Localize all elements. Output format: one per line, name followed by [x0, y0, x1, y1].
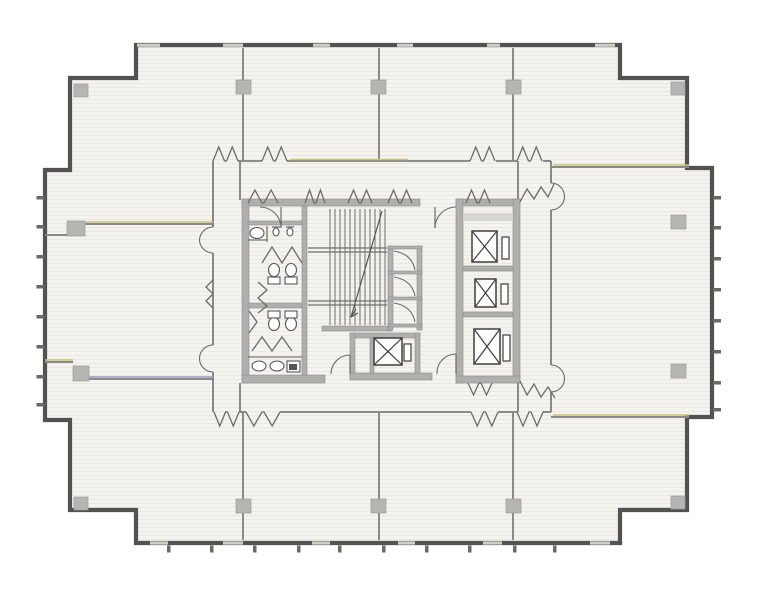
- wall-vent-segment: [397, 44, 413, 47]
- plumbing-fixture: [286, 264, 297, 277]
- window-mullion-tick: [513, 546, 517, 553]
- elevator-door: [502, 237, 509, 259]
- structural-column: [371, 499, 386, 513]
- core-wall: [350, 333, 355, 379]
- window-mullion-tick: [37, 403, 45, 407]
- core-wall: [463, 266, 513, 271]
- window-mullion-tick: [468, 546, 472, 553]
- structural-column: [236, 80, 251, 94]
- structural-column: [74, 84, 88, 97]
- plumbing-fixture: [269, 318, 280, 331]
- elevator-door: [501, 284, 508, 304]
- core-wall: [388, 246, 393, 330]
- window-mullion-tick: [297, 546, 301, 553]
- structural-column: [506, 80, 521, 94]
- elevator-door: [404, 344, 411, 361]
- plumbing-fixture: [269, 264, 280, 277]
- plumbing-fixture: [270, 361, 284, 371]
- structural-column: [236, 499, 251, 513]
- window-mullion-tick: [37, 375, 45, 379]
- core-wall: [302, 206, 307, 375]
- structural-column: [506, 499, 521, 513]
- structural-column: [73, 366, 89, 381]
- window-mullion-tick: [713, 381, 721, 385]
- window-mullion-tick: [713, 196, 721, 200]
- window-mullion-tick: [210, 546, 214, 553]
- structural-column: [671, 496, 685, 509]
- wall-vent-segment: [223, 44, 243, 47]
- structural-column: [67, 221, 85, 236]
- window-mullion-tick: [425, 546, 429, 553]
- wall-vent-segment: [313, 44, 330, 47]
- elevator-door: [503, 335, 510, 361]
- plumbing-fixture: [268, 277, 280, 284]
- window-mullion-tick: [713, 319, 721, 323]
- core-wall: [463, 312, 513, 317]
- core-wall: [456, 199, 463, 383]
- plumbing-fixture: [252, 361, 266, 371]
- core-wall: [248, 221, 302, 225]
- wall-vent-segment: [487, 44, 500, 47]
- plumbing-fixture: [250, 228, 264, 239]
- window-mullion-tick: [37, 255, 45, 259]
- core-wall: [242, 199, 249, 383]
- window-mullion-tick: [713, 257, 721, 261]
- core-wall: [388, 246, 422, 249]
- wall-vent-segment: [483, 541, 502, 544]
- structural-column: [671, 82, 685, 95]
- core-wall: [417, 246, 422, 330]
- core-wall: [513, 199, 520, 383]
- core-wall: [456, 376, 520, 383]
- plumbing-fixture: [289, 364, 297, 370]
- structural-column: [671, 215, 686, 229]
- core-wall: [350, 373, 432, 380]
- plumbing-fixture: [285, 277, 297, 284]
- floor-plan-drawing: [0, 0, 757, 600]
- wall-vent-segment: [312, 541, 330, 544]
- core-wall: [248, 303, 302, 308]
- scanned-floor-plan-page: [0, 0, 757, 600]
- window-mullion-tick: [553, 546, 557, 553]
- plumbing-fixture: [285, 311, 297, 318]
- core-wall: [415, 333, 420, 379]
- window-mullion-tick: [338, 546, 342, 553]
- structural-column: [371, 80, 386, 94]
- window-mullion-tick: [253, 546, 257, 553]
- window-mullion-tick: [37, 225, 45, 229]
- window-mullion-tick: [37, 196, 45, 200]
- wall-vent-segment: [150, 541, 168, 544]
- wall-vent-segment: [595, 44, 615, 47]
- window-mullion-tick: [713, 288, 721, 292]
- plumbing-fixture: [286, 318, 297, 331]
- core-wall: [322, 326, 392, 331]
- wall-vent-segment: [590, 541, 610, 544]
- window-mullion-tick: [167, 546, 171, 553]
- window-mullion-tick: [713, 408, 721, 412]
- structural-column: [671, 364, 686, 378]
- window-mullion-tick: [37, 315, 45, 319]
- structural-column: [74, 497, 88, 510]
- wall-vent-segment: [398, 541, 415, 544]
- window-mullion-tick: [382, 546, 386, 553]
- core-wall: [242, 375, 325, 383]
- core-wall: [242, 199, 420, 206]
- core-wall-light: [463, 213, 513, 221]
- core-wall: [388, 324, 422, 327]
- window-mullion-tick: [713, 350, 721, 354]
- window-mullion-tick: [713, 226, 721, 230]
- window-mullion-tick: [37, 345, 45, 349]
- plumbing-fixture: [268, 311, 280, 318]
- window-mullion-tick: [37, 285, 45, 289]
- plumbing-fixture: [287, 228, 293, 236]
- core-wall: [388, 297, 422, 300]
- wall-vent-segment: [137, 44, 160, 47]
- core-wall: [388, 271, 422, 274]
- wall-vent-segment: [223, 541, 243, 544]
- plumbing-fixture: [273, 228, 279, 236]
